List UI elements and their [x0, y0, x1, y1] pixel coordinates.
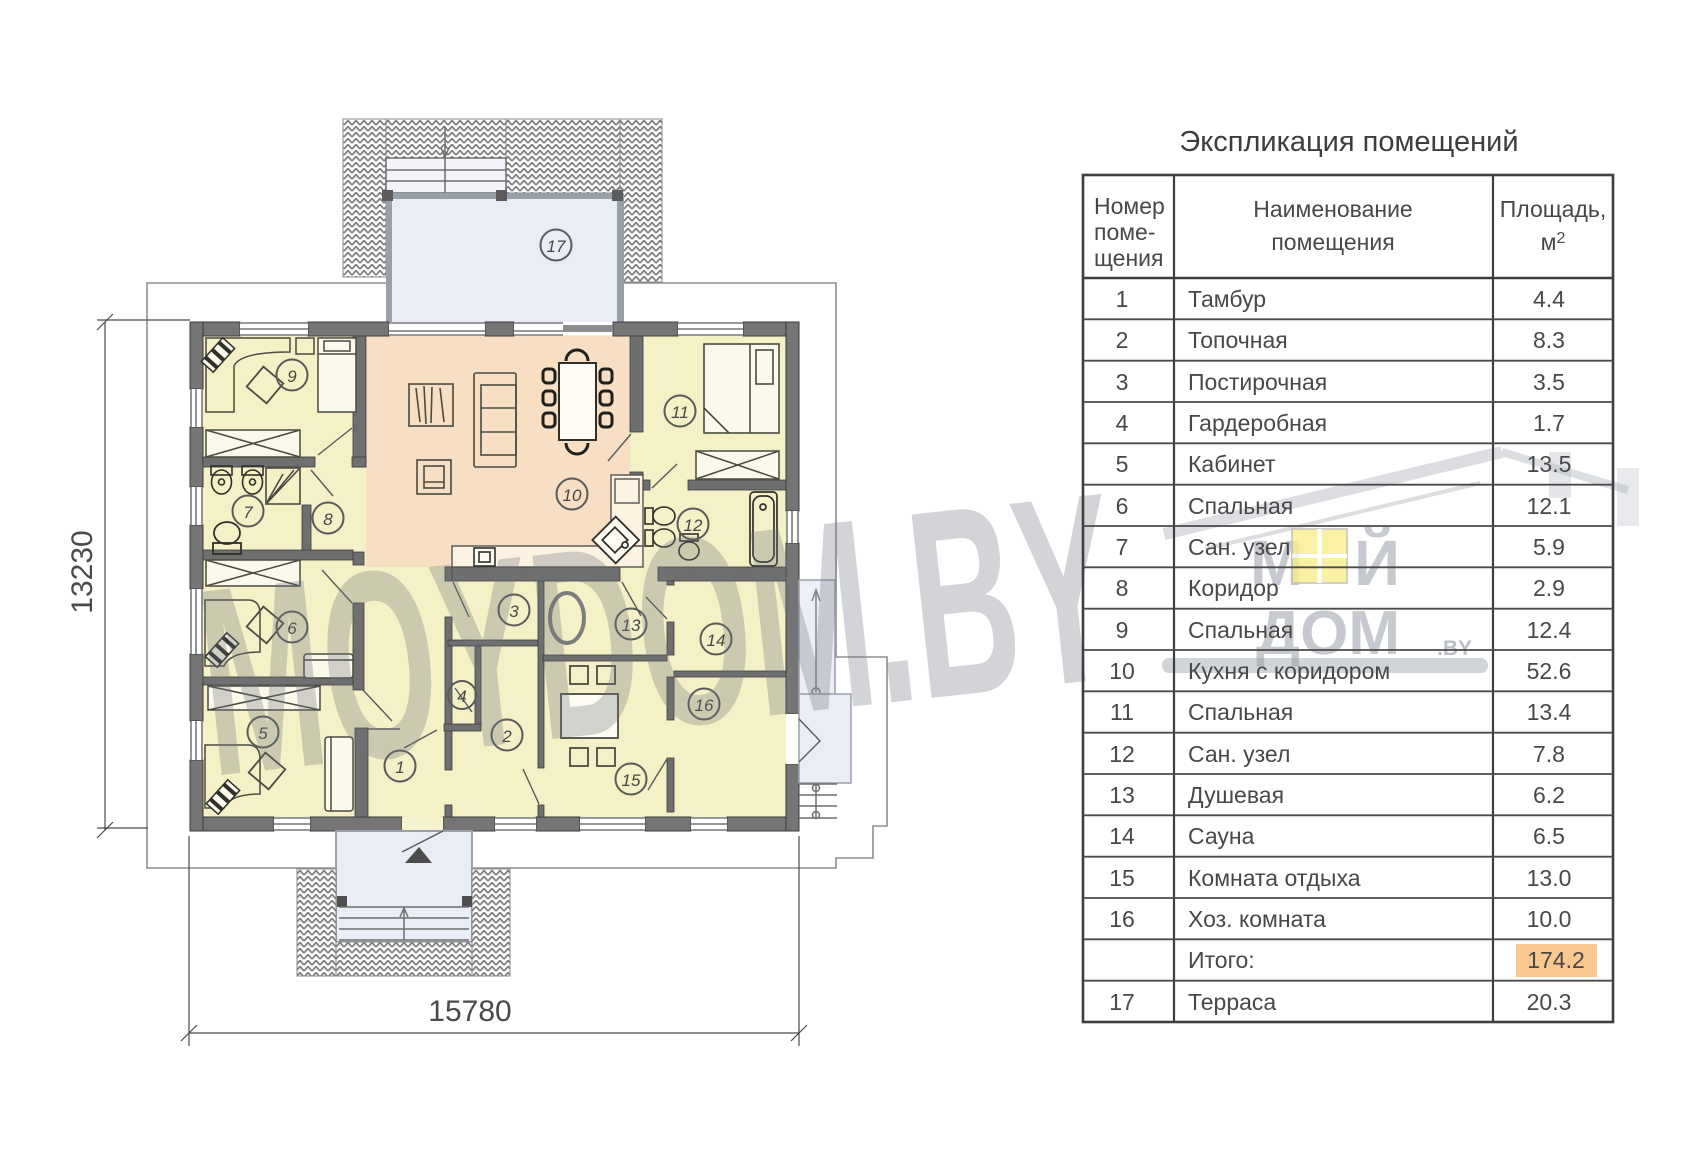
- svg-text:1: 1: [1116, 286, 1129, 312]
- svg-text:8.3: 8.3: [1533, 327, 1565, 353]
- svg-text:Кабинет: Кабинет: [1188, 451, 1276, 477]
- svg-text:Экспликация помещений: Экспликация помещений: [1179, 126, 1518, 158]
- svg-text:11: 11: [1110, 699, 1134, 725]
- svg-text:7: 7: [243, 503, 253, 522]
- svg-text:17: 17: [1109, 989, 1135, 1015]
- svg-text:13.0: 13.0: [1527, 865, 1572, 891]
- svg-text:52.6: 52.6: [1527, 658, 1572, 684]
- svg-text:7.8: 7.8: [1533, 741, 1565, 767]
- svg-text:12.4: 12.4: [1527, 617, 1572, 643]
- svg-text:Комната отдыха: Комната отдыха: [1188, 865, 1361, 891]
- svg-text:16: 16: [1109, 906, 1135, 932]
- svg-text:7: 7: [1116, 534, 1129, 560]
- svg-text:Душевая: Душевая: [1188, 782, 1284, 808]
- svg-text:9: 9: [287, 367, 297, 386]
- svg-text:Тамбур: Тамбур: [1188, 286, 1266, 312]
- svg-text:13230: 13230: [66, 530, 99, 613]
- svg-text:1.7: 1.7: [1533, 410, 1565, 436]
- svg-text:2.9: 2.9: [1533, 575, 1565, 601]
- svg-text:15: 15: [1109, 865, 1135, 891]
- svg-text:Наименование: Наименование: [1253, 196, 1412, 222]
- svg-text:13.5: 13.5: [1527, 451, 1572, 477]
- svg-text:3.5: 3.5: [1533, 369, 1565, 395]
- svg-text:Спальная: Спальная: [1188, 699, 1293, 725]
- svg-text:13: 13: [1109, 782, 1135, 808]
- svg-text:Гардеробная: Гардеробная: [1188, 410, 1327, 436]
- svg-text:Спальная: Спальная: [1188, 493, 1293, 519]
- svg-text:Спальная: Спальная: [1188, 617, 1293, 643]
- svg-text:поме-: поме-: [1094, 219, 1156, 245]
- svg-text:14: 14: [1109, 823, 1135, 849]
- svg-text:10.0: 10.0: [1527, 906, 1572, 932]
- svg-text:4.4: 4.4: [1533, 286, 1565, 312]
- svg-text:17: 17: [547, 237, 566, 256]
- svg-text:Сауна: Сауна: [1188, 823, 1255, 849]
- svg-text:Итого:: Итого:: [1188, 947, 1255, 973]
- svg-text:Постирочная: Постирочная: [1188, 369, 1327, 395]
- svg-text:6: 6: [1116, 493, 1129, 519]
- svg-text:Терраса: Терраса: [1188, 989, 1276, 1015]
- svg-text:6.5: 6.5: [1533, 823, 1565, 849]
- svg-text:5.9: 5.9: [1533, 534, 1565, 560]
- svg-text:.BY: .BY: [1437, 637, 1472, 660]
- svg-text:12: 12: [1109, 741, 1135, 767]
- svg-text:2: 2: [1116, 327, 1129, 353]
- svg-text:3: 3: [1116, 369, 1129, 395]
- svg-text:12.1: 12.1: [1527, 493, 1572, 519]
- svg-text:11: 11: [671, 403, 689, 422]
- svg-text:Сан. узел: Сан. узел: [1188, 741, 1290, 767]
- svg-text:помещения: помещения: [1271, 229, 1394, 255]
- svg-text:Й: Й: [1354, 526, 1400, 599]
- svg-text:13.4: 13.4: [1527, 699, 1572, 725]
- svg-text:8: 8: [1116, 575, 1129, 601]
- svg-text:9: 9: [1116, 617, 1129, 643]
- svg-text:Площадь,: Площадь,: [1500, 196, 1607, 222]
- svg-text:Коридор: Коридор: [1188, 575, 1279, 601]
- svg-text:20.3: 20.3: [1527, 989, 1572, 1015]
- svg-text:5: 5: [1116, 451, 1129, 477]
- svg-text:174.2: 174.2: [1527, 947, 1585, 973]
- svg-text:6.2: 6.2: [1533, 782, 1565, 808]
- svg-text:Сан. узел: Сан. узел: [1188, 534, 1290, 560]
- svg-text:Номер: Номер: [1094, 193, 1165, 219]
- svg-text:Кухня с коридором: Кухня с коридором: [1188, 658, 1390, 684]
- svg-text:15780: 15780: [428, 995, 511, 1028]
- svg-text:4: 4: [1116, 410, 1129, 436]
- svg-text:щения: щения: [1094, 245, 1163, 271]
- svg-text:Топочная: Топочная: [1188, 327, 1288, 353]
- svg-text:10: 10: [1109, 658, 1135, 684]
- svg-text:Хоз. комната: Хоз. комната: [1188, 906, 1326, 932]
